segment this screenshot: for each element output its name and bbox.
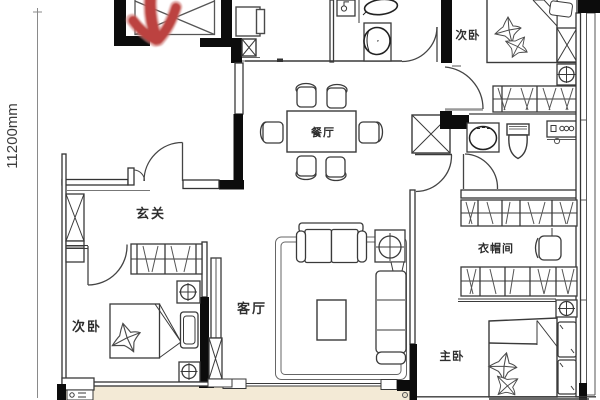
svg-text:客厅: 客厅 bbox=[237, 301, 267, 316]
svg-text:衣帽间: 衣帽间 bbox=[478, 241, 514, 255]
svg-text:主卧: 主卧 bbox=[440, 349, 465, 363]
svg-text:次卧: 次卧 bbox=[72, 319, 102, 334]
svg-text:餐厅: 餐厅 bbox=[310, 125, 335, 139]
svg-text:玄关: 玄关 bbox=[136, 206, 166, 221]
svg-text:次卧: 次卧 bbox=[456, 28, 481, 42]
svg-text:11200mm: 11200mm bbox=[4, 103, 21, 169]
